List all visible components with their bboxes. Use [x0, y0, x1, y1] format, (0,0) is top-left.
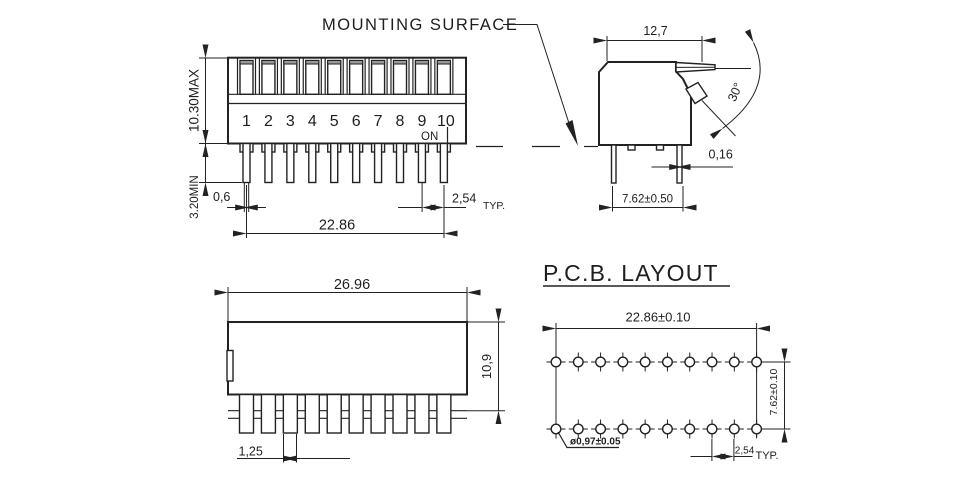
switch-lever-cap [328, 61, 341, 65]
dim-pin-span: 22.86 [247, 185, 445, 238]
dim-text: ø0,97±0.05 [570, 437, 621, 448]
pcb-hole [703, 420, 722, 439]
angle-ref-line-inclined [702, 101, 736, 137]
pcb-hole [703, 353, 722, 372]
bottom-body-outline [228, 322, 467, 395]
side-pin [612, 145, 617, 183]
switch-lever [240, 61, 253, 95]
pcb-hole [547, 420, 566, 439]
front-pin [287, 144, 294, 183]
switch-number: 3 [286, 113, 295, 130]
pcb-hole [636, 353, 655, 372]
bottom-pin [349, 395, 363, 434]
dim-text: 0,16 [709, 148, 733, 162]
switch-lever [350, 61, 363, 95]
hole-circle [752, 357, 762, 367]
hole-circle [685, 424, 695, 434]
pcb-hole [680, 353, 699, 372]
hole-circle [752, 424, 762, 434]
hole-circle [618, 424, 628, 434]
hole-circle [573, 357, 583, 367]
switch-lever-cap [306, 61, 319, 65]
pcb-hole [725, 420, 744, 439]
switch-lever-cap [437, 61, 450, 65]
switch-lever-cap [240, 61, 253, 65]
leader-line [503, 25, 572, 132]
switch-number: 7 [374, 113, 383, 130]
pcb-hole-grid [547, 353, 767, 439]
hole-circle [663, 424, 673, 434]
hole-circle [685, 357, 695, 367]
bottom-pin [415, 395, 429, 434]
callout-hole-diameter: ø0,97±0.05 [558, 432, 621, 448]
hole-circle [551, 424, 561, 434]
side-view: 30° 12,7 0,16 7.62±0.50 [599, 24, 760, 212]
pcb-hole [725, 353, 744, 372]
dip-switch-dimension-drawing: MOUNTING SURFACE 12345678910 ON 10.30MAX… [0, 0, 960, 488]
hole-circle [730, 424, 740, 434]
dim-overall-width: 26.96 [228, 277, 467, 322]
hole-circle [551, 357, 561, 367]
hole-circle [640, 424, 650, 434]
dim-row-spacing: 7.62±0.50 [613, 186, 684, 212]
front-pin [243, 144, 250, 183]
pcb-hole [658, 353, 677, 372]
pcb-hole [613, 353, 632, 372]
switch-lever-cap [284, 61, 297, 65]
dim-pin-width: 0,6 [213, 183, 266, 213]
pcb-hole [569, 353, 588, 372]
hole-circle [596, 424, 606, 434]
pcb-layout: P.C.B. LAYOUT 22.86±0.10 7.62±0.10 ø0,97… [543, 260, 791, 462]
dim-hole-row-spacing: 7.62±0.10 [763, 362, 791, 429]
standoff-tab [628, 145, 635, 150]
dim-text: 22.86 [319, 218, 355, 234]
switch-number: 10 [437, 113, 455, 130]
bottom-pin [437, 395, 451, 434]
switch-number: 4 [308, 113, 317, 130]
standoff-tab [657, 145, 664, 150]
switch-lever [262, 61, 275, 95]
front-pin [265, 144, 272, 183]
front-pin [397, 144, 404, 183]
front-pin [331, 144, 338, 183]
switch-lever [306, 61, 319, 95]
dim-text-typ: TYP. [483, 200, 505, 212]
bottom-pin [261, 395, 275, 434]
dim-text: 10.30MAX [187, 69, 202, 132]
dim-text: 2,54 [735, 446, 755, 457]
switch-lever [284, 61, 297, 95]
hole-circle [640, 357, 650, 367]
pcb-layout-title: P.C.B. LAYOUT [543, 260, 719, 286]
switch-lever [372, 61, 385, 95]
pcb-hole [591, 353, 610, 372]
hole-circle [618, 357, 628, 367]
dim-text: 10,9 [479, 354, 494, 379]
front-pin [353, 144, 360, 183]
hole-circle [707, 357, 717, 367]
switch-number: 1 [242, 113, 251, 130]
switch-number: 5 [330, 113, 339, 130]
switch-number: 2 [264, 113, 273, 130]
dim-pitch: 2,54 TYP. [398, 183, 505, 212]
dim-pin-tab-width: 1,25 [237, 434, 350, 463]
front-view: 12345678910 ON 10.30MAX 3.20MIN 0,6 [187, 58, 505, 238]
pcb-hole [658, 420, 677, 439]
bottom-pin [327, 395, 341, 434]
switch-lever [328, 61, 341, 95]
dim-text: 12,7 [643, 24, 667, 38]
switch-lever [394, 61, 407, 95]
pcb-hole [680, 420, 699, 439]
switch-number: 9 [417, 113, 426, 130]
hole-circle [596, 357, 606, 367]
bottom-pin [283, 395, 297, 434]
bottom-pin [393, 395, 407, 434]
bottom-pin [240, 395, 254, 434]
pcb-hole [547, 353, 566, 372]
dim-hole-span: 22.86±0.10 [556, 310, 757, 438]
drawing-canvas: MOUNTING SURFACE 12345678910 ON 10.30MAX… [0, 0, 960, 488]
dim-height-max: 10.30MAX [187, 58, 228, 144]
leader-arrowhead [566, 120, 579, 146]
side-body-outline [599, 62, 691, 145]
switch-lever [437, 61, 450, 95]
hole-circle [663, 357, 673, 367]
switch-number: 6 [352, 113, 361, 130]
dim-overall-height: 10,9 [467, 322, 505, 411]
dim-hole-pitch: 2,54 TYP. [691, 439, 779, 462]
switch-lever-cap [394, 61, 407, 65]
switch-number: 8 [396, 113, 405, 130]
switch-lever-cap [262, 61, 275, 65]
hole-circle [573, 424, 583, 434]
hole-circle [730, 357, 740, 367]
bottom-pins [240, 395, 451, 434]
switch-lever-cap [350, 61, 363, 65]
switch-lever-cap [372, 61, 385, 65]
side-pin [677, 145, 682, 183]
dim-text: 1,25 [239, 445, 263, 459]
dim-text-typ: TYP. [756, 450, 779, 462]
dim-text: 22.86±0.10 [626, 310, 691, 325]
bottom-pin [305, 395, 319, 434]
on-label: ON [421, 131, 438, 143]
front-pin [440, 144, 447, 183]
bottom-view: 26.96 10,9 1,25 [227, 277, 505, 463]
side-notch [227, 351, 233, 382]
pcb-hole [636, 420, 655, 439]
front-pin [309, 144, 316, 183]
front-pins [240, 144, 450, 183]
dim-text: 3.20MIN [189, 175, 201, 218]
dim-text: 2,54 [452, 192, 476, 206]
dim-text: 26.96 [334, 277, 370, 293]
switch-lever [415, 61, 428, 95]
dim-text: 7.62±0.10 [768, 369, 780, 416]
switch-lever-cap [415, 61, 428, 65]
dim-body-width: 12,7 [607, 24, 702, 62]
dim-text-angle: 30° [725, 81, 745, 104]
bottom-pin [371, 395, 385, 434]
front-pin [418, 144, 425, 183]
dim-text: 0,6 [213, 190, 230, 204]
mounting-surface-label: MOUNTING SURFACE [322, 16, 518, 34]
front-pin [375, 144, 382, 183]
dim-text: 7.62±0.50 [622, 194, 673, 206]
hole-circle [707, 424, 717, 434]
